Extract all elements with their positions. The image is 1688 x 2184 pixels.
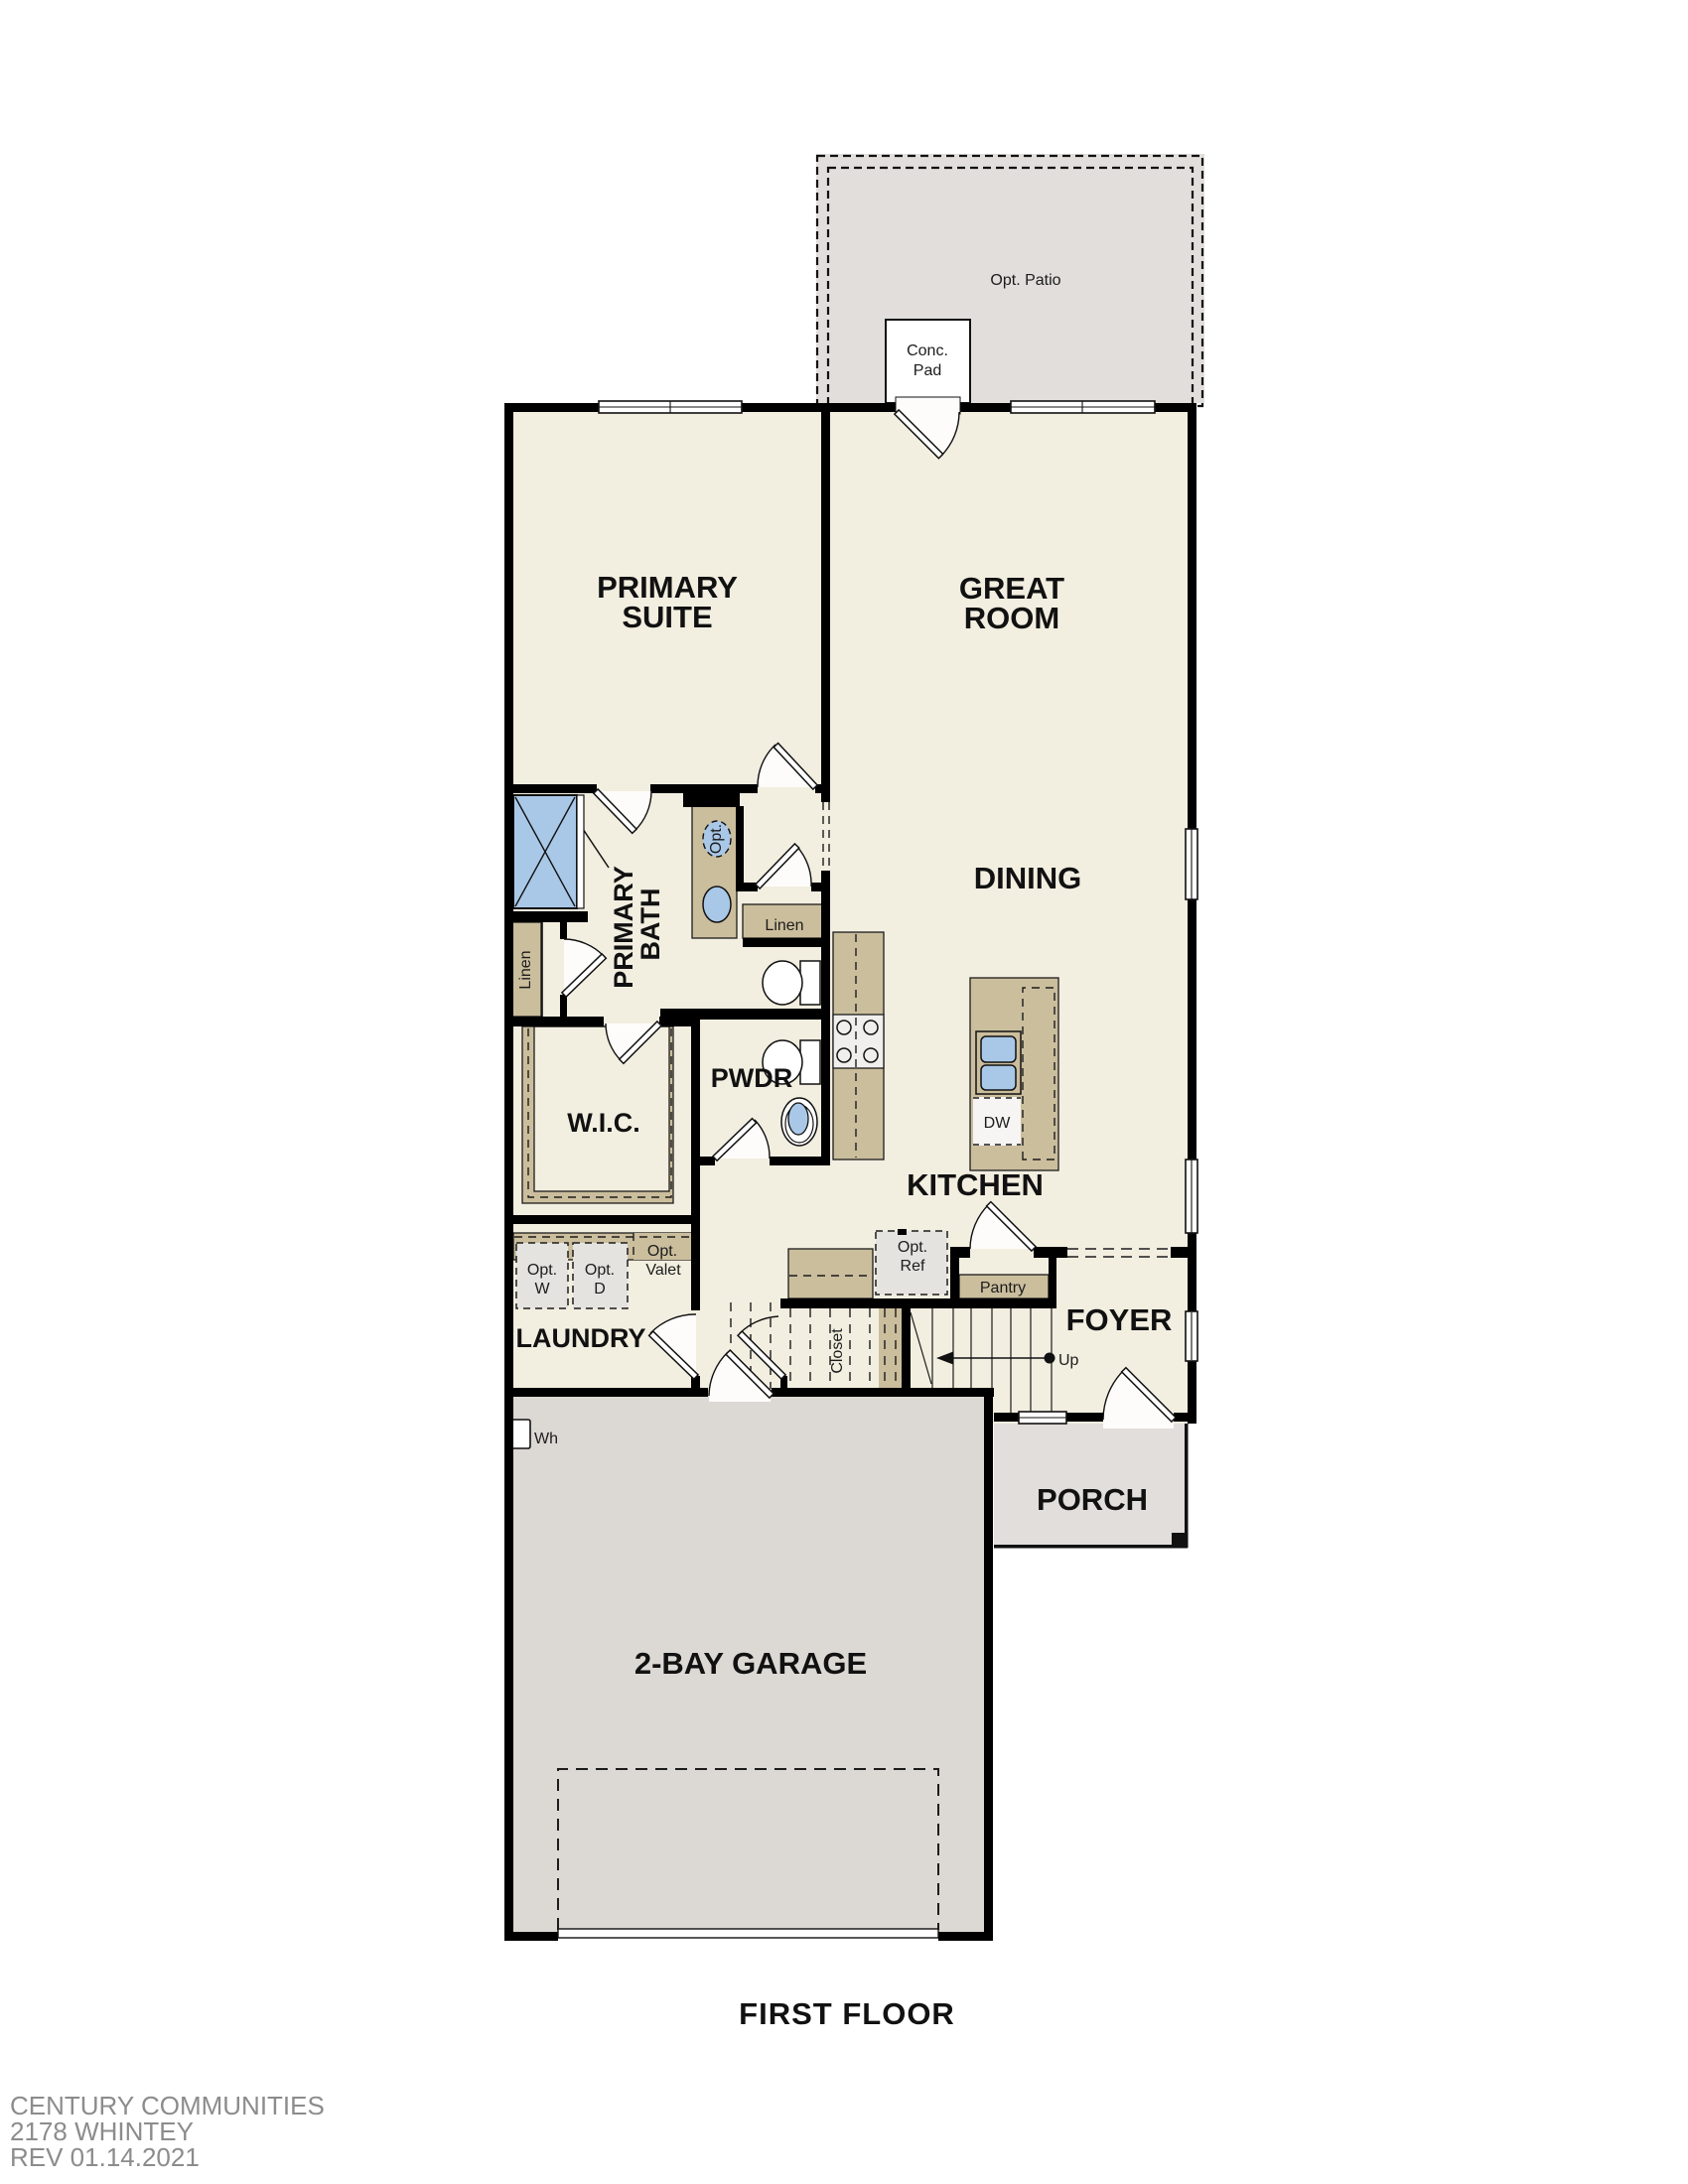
- svg-text:Conc.: Conc.: [907, 342, 948, 359]
- svg-text:REV 01.14.2021: REV 01.14.2021: [10, 2142, 200, 2172]
- svg-text:Closet: Closet: [829, 1328, 846, 1374]
- svg-text:BATH: BATH: [635, 888, 665, 961]
- svg-text:Pad: Pad: [914, 362, 941, 379]
- svg-text:Opt.: Opt.: [898, 1239, 927, 1256]
- svg-text:Wh: Wh: [534, 1431, 558, 1447]
- svg-text:SUITE: SUITE: [622, 600, 712, 634]
- svg-text:D: D: [594, 1281, 606, 1297]
- svg-text:Linen: Linen: [517, 950, 534, 989]
- svg-text:Opt.: Opt.: [647, 1243, 677, 1260]
- svg-text:KITCHEN: KITCHEN: [907, 1167, 1044, 1202]
- svg-text:FOYER: FOYER: [1066, 1302, 1173, 1337]
- svg-text:LAUNDRY: LAUNDRY: [516, 1323, 646, 1353]
- svg-text:Opt.: Opt.: [708, 824, 725, 854]
- svg-text:Pantry: Pantry: [980, 1280, 1026, 1297]
- svg-text:Valet: Valet: [645, 1262, 681, 1279]
- svg-text:Opt.: Opt.: [585, 1262, 615, 1279]
- svg-text:PWDR: PWDR: [711, 1063, 793, 1093]
- svg-text:PORCH: PORCH: [1037, 1482, 1148, 1517]
- svg-text:W.I.C.: W.I.C.: [567, 1108, 640, 1138]
- svg-text:DINING: DINING: [974, 861, 1082, 895]
- svg-text:Opt.: Opt.: [527, 1262, 557, 1279]
- svg-text:FIRST FLOOR: FIRST FLOOR: [739, 1996, 955, 2031]
- svg-text:Linen: Linen: [765, 917, 803, 934]
- svg-text:DW: DW: [984, 1115, 1012, 1132]
- svg-text:ROOM: ROOM: [964, 601, 1059, 635]
- svg-text:W: W: [534, 1281, 550, 1297]
- svg-text:PRIMARY: PRIMARY: [609, 866, 638, 989]
- svg-text:2-BAY GARAGE: 2-BAY GARAGE: [634, 1646, 867, 1681]
- svg-text:Up: Up: [1058, 1352, 1079, 1369]
- svg-text:Ref: Ref: [901, 1258, 925, 1275]
- svg-text:Opt. Patio: Opt. Patio: [990, 272, 1060, 289]
